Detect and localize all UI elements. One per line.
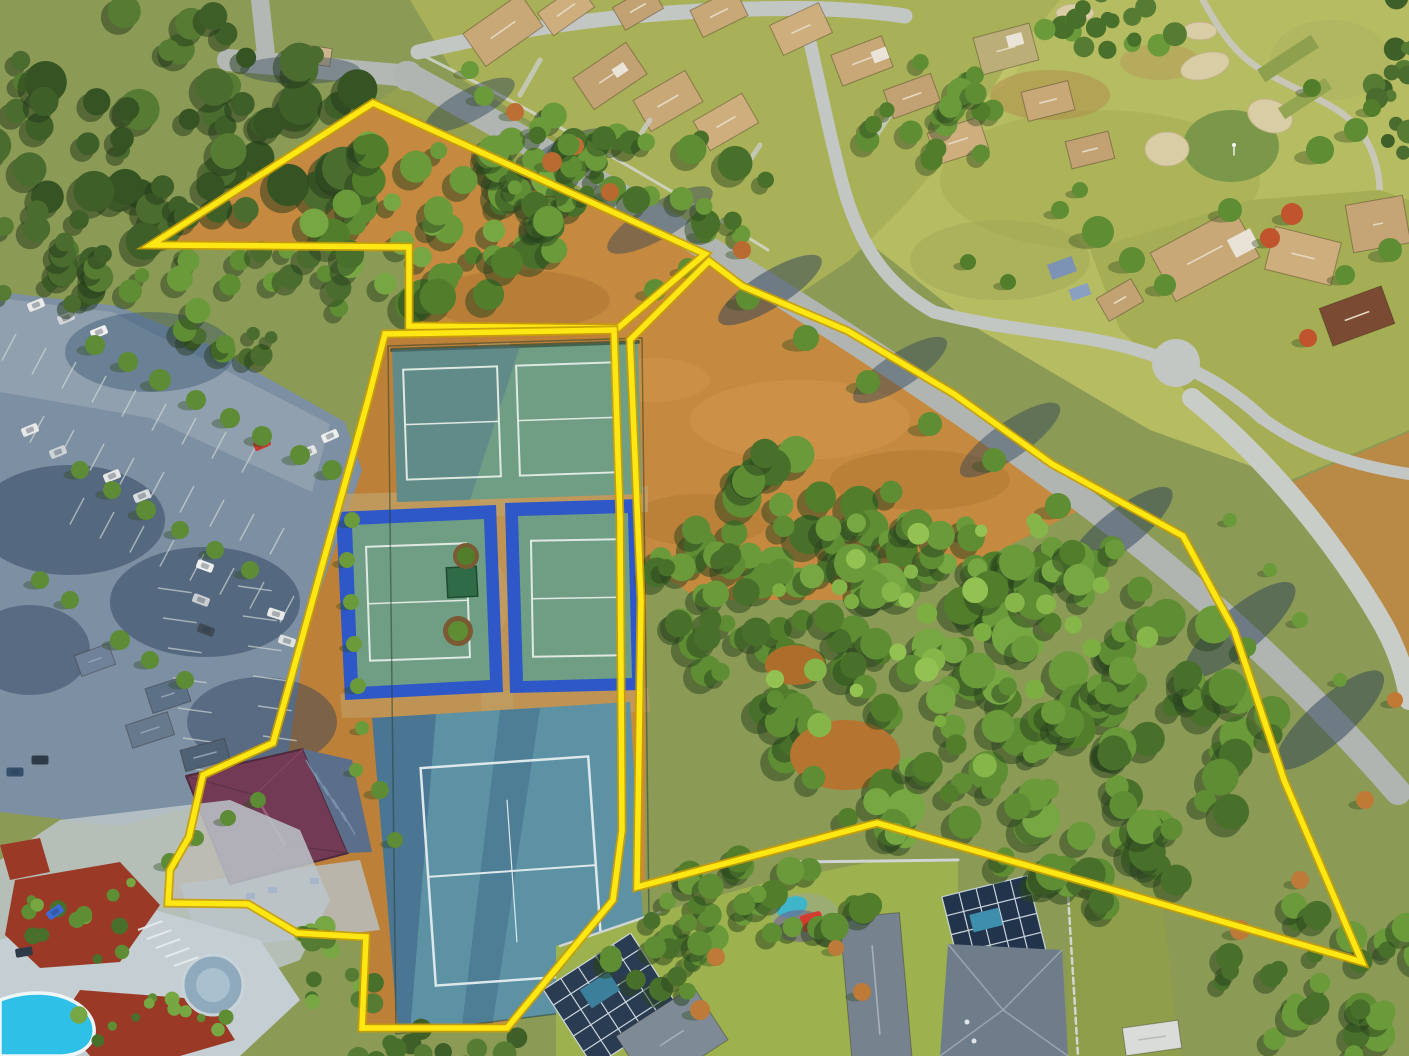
scatter [94,245,112,263]
scatter [658,559,675,576]
circle [196,968,230,1002]
palm-row-mid-left [219,274,240,295]
scatter [1098,41,1116,59]
median-shrub [1333,673,1347,687]
scatter [687,931,712,956]
scatter [679,914,697,932]
scatter [912,54,929,71]
scatter [1202,759,1239,796]
autumn-accent [1281,203,1303,225]
bottom-canopy [776,857,804,885]
bunker [1145,132,1189,166]
parking-palm [136,500,156,520]
autumn-tree [733,241,751,259]
scatter [306,972,322,988]
aerial-scene [0,0,1409,1056]
scatter [982,780,1001,799]
court-edge-palm [339,552,355,568]
neighborhood-trees [529,127,547,145]
scatter [644,936,666,958]
parked-car [32,756,49,765]
right-cluster-tree [1306,136,1334,164]
field-tree [793,325,819,351]
canopy-sunlit-tops [899,592,915,608]
scatter [1161,818,1183,840]
neighborhood-trees [724,212,742,230]
scatter [879,102,894,117]
scatter [126,878,136,888]
canopy-sunlit-tops [934,715,946,727]
scatter [1109,791,1137,819]
parking-palm [252,426,272,446]
scatter [22,215,50,243]
neighborhood-trees [757,172,774,189]
north-stub-road [260,0,267,64]
scatter [948,806,981,839]
scatter [144,998,155,1009]
median-shrub [1263,563,1277,577]
scatter [508,180,522,194]
parked-car [7,768,24,777]
canopy-sunlit-tops [832,579,848,595]
autumn-shrub [828,940,844,956]
parking-palm [206,541,224,559]
canopy-sunlit-tops [1036,594,1056,614]
trees [1291,871,1309,889]
parking-palm [31,571,49,589]
woods-top-left [231,92,255,116]
scatter [626,970,646,990]
parking-palm [141,651,159,669]
bottom-right-trees [1304,993,1330,1019]
bottom-right-trees [1221,962,1239,980]
scatter [1004,793,1031,820]
scatter [197,1014,206,1023]
court-edge-palm [349,763,363,777]
verge-tree [474,86,494,106]
east-parcel-canopy [682,515,711,544]
golf-palm [1000,274,1016,290]
scatter [920,148,942,170]
parking-palm [71,461,89,479]
north-parcel-canopy [400,151,432,183]
scatter [218,1010,233,1025]
scatter [926,521,955,550]
woods-top-left [196,68,234,106]
scatter [667,967,686,986]
scatter [767,690,784,707]
palm-row-mid-left [185,298,210,323]
cul-de-sac [1152,339,1200,387]
verge-tree [461,61,479,79]
golf-palm [1363,99,1381,117]
parking-palm [61,591,79,609]
scatter [733,578,760,605]
skylight [972,1039,977,1044]
scatter [31,898,44,911]
scatter [111,917,128,934]
aerial-photo [0,0,1409,1056]
scatter [180,1005,192,1017]
median-shrub [1223,513,1237,527]
clubhouse-palm [371,781,389,799]
north-parcel-canopy [424,196,453,225]
right-cluster-tree [1378,238,1402,262]
scatter [115,945,129,959]
neighborhood-trees [557,134,579,156]
scatter [1063,564,1095,596]
scatter [1163,22,1187,46]
scatter [926,684,956,714]
scatter [679,983,696,1000]
canopy-sunlit-tops [844,594,859,609]
bottom-right-trees [1310,973,1330,993]
woods-top-left [179,109,200,130]
woods-top-left [210,133,246,169]
scatter [959,652,995,688]
palm-row-mid-left [135,268,150,283]
scatter [1067,822,1096,851]
canopy-sunlit-tops [766,670,784,688]
scatter [1127,577,1152,602]
court-edge-palm [355,721,369,735]
woods-top-left [73,171,114,212]
parking-palm [110,630,130,650]
scatter [69,912,85,928]
neighborhood-trees [677,135,707,165]
palm-row-mid-left [265,331,278,344]
woods-top-left [279,81,323,125]
bottom-right-trees [1350,999,1370,1019]
parking-palm [171,521,189,539]
neighborhood-trees [696,198,713,215]
parking-palm [85,335,105,355]
far-right-tree-strip [1384,65,1400,81]
woods-top-left [236,48,256,68]
scatter [1011,635,1038,662]
canopy-sunlit-tops [1005,593,1025,613]
parking-palm [149,369,171,391]
bunker [1183,22,1217,40]
north-parcel-canopy [383,193,401,211]
golf-palm [1303,79,1321,97]
house-roof [840,913,913,1056]
scatter [665,610,693,638]
scatter [860,628,892,660]
scatter [165,992,180,1007]
scatter [1034,19,1055,40]
clubhouse-palm [387,832,403,848]
bottom-canopy [849,895,878,924]
house-roof-pyramid [940,944,1068,1056]
canopy-sunlit-tops [1093,577,1110,594]
woods-top-left [254,108,285,139]
north-parcel-canopy [299,209,328,238]
scatter [108,1021,117,1030]
scatter [870,694,898,722]
canopy-sunlit-tops [907,523,929,545]
scatter [600,950,622,972]
neighborhood-trees [533,206,564,237]
scatter [93,954,103,964]
scatter [711,663,730,682]
north-parcel-canopy [333,190,361,218]
right-cluster-tree [1335,265,1355,285]
scatter [1161,865,1192,896]
canopy-sunlit-tops [1083,639,1101,657]
scatter [1095,682,1118,705]
autumn-accent [1299,329,1317,347]
woods-top-left [110,127,134,151]
bottom-canopy [821,913,849,941]
neighborhood-trees [718,146,753,181]
bottom-left-brush [382,1035,398,1051]
north-parcel-canopy [353,135,372,154]
canopy-sunlit-tops [915,658,939,682]
skylight [965,1020,970,1025]
canopy-sunlit-tops [973,623,992,642]
scatter [814,603,844,633]
canopy-sunlit-tops [917,603,938,624]
far-right-tree-strip [1381,134,1395,148]
woods-top-left [29,87,58,116]
scatter [694,624,721,651]
court-edge-palm [350,678,366,694]
right-cluster-tree [1218,198,1242,222]
canopy-sunlit-tops [904,565,918,579]
autumn-tree [506,103,524,121]
parking-palm [186,390,206,410]
woods-top-left [13,152,47,186]
scatter [1066,8,1087,29]
scatter [999,677,1017,695]
parking-palm [322,460,342,480]
car-glass [36,758,44,763]
median-autumn [1356,791,1374,809]
scatter [865,116,882,133]
canopy-sunlit-tops [807,713,831,737]
north-parcel-canopy [430,142,447,159]
scatter [305,994,320,1009]
scatter [946,734,967,755]
circle [457,547,475,565]
scatter [1101,12,1115,26]
palm-row-mid-left [246,327,260,341]
scatter [1105,539,1125,559]
right-cluster-tree [1072,182,1088,198]
court-edge-palm [346,636,362,652]
clubhouse-palm [250,792,266,808]
scatter [863,788,890,815]
field-tree [982,448,1006,472]
scatter [802,766,826,790]
scatter [1060,540,1086,566]
scatter [70,1006,87,1023]
median-autumn [1387,692,1403,708]
scatter [91,1034,104,1047]
autumn-tree [542,152,562,172]
scatter [840,652,867,679]
canopy-sunlit-tops [962,577,988,603]
scatter [847,514,866,533]
scatter [24,927,41,944]
scatter [107,889,120,902]
scatter [816,515,842,541]
field-tree [1045,493,1071,519]
north-parcel-canopy [483,220,506,243]
yard-wall [795,860,958,862]
scatter [912,752,942,782]
east-parcel-canopy [805,481,836,512]
field-tree [918,412,942,436]
north-parcel-canopy [491,247,523,279]
woods-top-left [233,197,258,222]
scatter [211,1023,225,1037]
parking-palm [220,408,240,428]
right-cluster-tree [1082,216,1114,248]
golf-palm [960,254,976,270]
scatter [800,564,824,588]
woods-top-left [199,2,227,30]
scatter [718,543,742,567]
gazebo [446,566,478,598]
canopy-sunlit-tops [973,753,997,777]
woods-top-left [151,175,174,198]
right-cluster-tree [1154,274,1176,296]
north-parcel-canopy [411,247,432,268]
scatter [69,210,89,230]
field-tree [856,370,880,394]
circle [448,621,468,641]
scatter [972,144,990,162]
north-parcel-canopy [374,273,396,295]
parking-palm [118,352,138,372]
palm-row-mid-left [216,335,235,354]
east-parcel-canopy [769,493,793,517]
woods-top-left [11,51,30,70]
court-edge-palm [344,512,360,528]
canopy-sunlit-tops [846,549,866,569]
scatter [899,120,922,143]
court-edge-palm [343,594,359,610]
autumn-shrub [707,948,725,966]
canopy-sunlit-tops [1137,626,1159,648]
canopy-sunlit-tops [1026,513,1042,529]
car-glass [11,770,19,775]
scatter [742,617,771,646]
parking-palm [176,671,194,689]
canopy-sunlit-tops [1025,680,1045,700]
bottom-canopy [783,917,803,937]
parking-palm [103,481,121,499]
right-cluster-tree [1051,201,1069,219]
woods-top-left [83,88,110,115]
neighborhood-trees [670,187,694,211]
right-cluster-tree [1344,118,1368,142]
scatter [1041,700,1065,724]
scatter [1074,37,1095,58]
scatter [982,710,1015,743]
scatter [1209,669,1246,706]
scatter [965,83,987,105]
scatter [63,295,81,313]
autumn-tree [601,183,619,201]
neighborhood-trees [592,126,616,150]
woods-top-left [76,132,99,155]
bottom-right-trees [1303,901,1332,930]
autumn-accent [1260,228,1280,248]
woods-top-left [158,39,180,61]
scatter [1213,794,1249,830]
woods-top-left [280,43,319,82]
woods-top-left [116,97,140,121]
scatter [703,581,730,608]
scatter [999,544,1035,580]
scatter [131,1013,140,1022]
autumn-shrub [853,983,871,1001]
bottom-right-trees [1260,964,1283,987]
bottom-canopy [762,923,782,943]
canopy-sunlit-tops [1065,616,1083,634]
scatter [1109,656,1138,685]
parking-palm [241,561,259,579]
neighborhood-trees [623,186,650,213]
canopy-sunlit-tops [975,525,987,537]
neighborhood-trees [637,133,655,151]
scatter [1023,745,1041,763]
palm-row-mid-left [167,266,193,292]
median-shrub [1292,612,1308,628]
right-cluster-tree [1119,247,1145,273]
parking-palm [290,445,310,465]
bottom-canopy [698,874,724,900]
scatter [880,481,902,503]
canopy-sunlit-tops [804,659,827,682]
canopy-sunlit-tops [881,582,901,602]
palm-row-mid-left [119,279,142,302]
scatter [643,912,660,929]
canopy-sunlit-tops [772,583,786,597]
east-parcel-canopy [750,439,779,468]
scatter [55,233,74,252]
flag [1232,143,1236,147]
scatter [1131,722,1165,756]
scatter [1173,661,1202,690]
bottom-canopy [733,893,755,915]
scatter [940,784,959,803]
east-parcel-canopy [773,515,795,537]
clubhouse-palm [220,810,236,826]
autumn-shrub [690,1000,710,1020]
scatter [1123,8,1141,26]
north-parcel-canopy [420,278,456,314]
canopy-sunlit-tops [889,643,906,660]
scatter [939,95,962,118]
canopy-sunlit-tops [850,684,863,697]
scatter [345,968,359,982]
scatter [1097,739,1129,771]
scatter [1127,33,1141,47]
